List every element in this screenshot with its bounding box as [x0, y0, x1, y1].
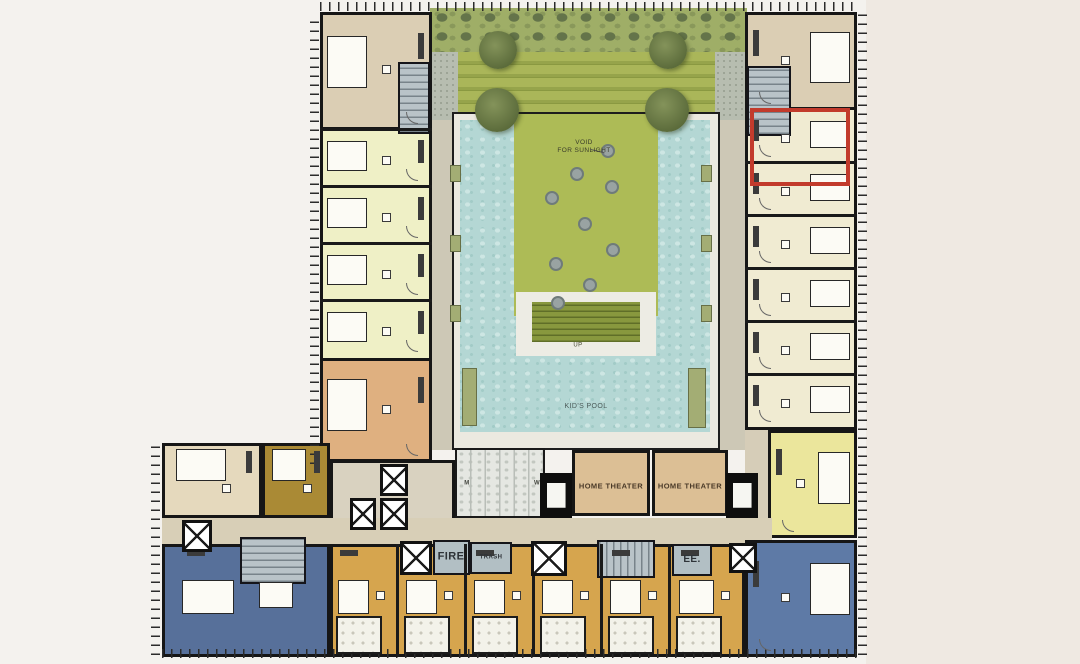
unit-22-tbl-2: [648, 591, 657, 600]
unit-12-tbl-2: [781, 399, 790, 408]
island-steps: [532, 302, 640, 342]
elevator-shaft-5: [531, 541, 567, 576]
interior-wall-12: [600, 544, 603, 657]
elevator-shaft-6: [729, 543, 757, 573]
label-trash: TRASH: [480, 554, 503, 561]
unit-10-clo-1: [753, 279, 759, 300]
label-home-theater-1: HOME THEATER: [579, 482, 643, 491]
unit-6-tbl-2: [781, 56, 790, 65]
unit-2-tbl-2: [382, 213, 391, 222]
unit-13-clo-1: [776, 449, 782, 475]
pool-column-5: [701, 305, 712, 322]
unit-15-tbl-2: [222, 484, 231, 493]
skylight-circle-3: [545, 191, 559, 205]
skylight-circle-4: [578, 217, 592, 231]
unit-11-clo-1: [753, 332, 759, 353]
unit-19-bed-0: [406, 580, 437, 614]
unit-3-tbl-2: [382, 270, 391, 279]
unit-23-tbl-2: [721, 591, 730, 600]
label-void-for-sunlight: VOID FOR SUNLIGHT: [557, 139, 610, 155]
stair-bottom-left: [240, 537, 306, 584]
unit-0-clo-1: [418, 33, 424, 59]
unit-16-bed-0: [272, 449, 306, 481]
pool-column-6: [688, 368, 706, 428]
terrace-paving-right: [715, 52, 747, 120]
theater-screen-2: [726, 473, 758, 518]
label-up: UP: [573, 342, 582, 349]
selected-unit-outline: [750, 108, 850, 186]
grid-ticks-2: [151, 443, 160, 655]
unit-16-tbl-2: [303, 484, 312, 493]
grid-ticks-4: [858, 14, 867, 655]
elevator-shaft-3: [182, 520, 212, 552]
bathroom-pod-5: [676, 616, 722, 654]
interior-wall-7: [745, 320, 857, 323]
unit-11-bed-0: [810, 333, 850, 361]
label-ee: EE.: [683, 554, 700, 566]
pool-column-3: [701, 165, 712, 182]
stair-bottom-center: [597, 540, 655, 578]
unit-22-bed-0: [610, 580, 641, 614]
terrace-paving-left: [432, 52, 458, 120]
unit-14-bed-0: [810, 563, 850, 615]
unit-8-tbl-2: [781, 187, 790, 196]
unit-10-tbl-2: [781, 293, 790, 302]
unit-20-bed-0: [474, 580, 505, 614]
interior-wall-5: [745, 214, 857, 217]
unit-6-bed-0: [810, 32, 850, 83]
unit-13-tbl-2: [796, 479, 805, 488]
skylight-circle-8: [551, 296, 565, 310]
unit-15-bed-0: [176, 449, 226, 481]
interior-wall-13: [668, 544, 671, 657]
skylight-circle-6: [549, 257, 563, 271]
interior-wall-6: [745, 267, 857, 270]
unit-12-bed-0: [810, 386, 850, 414]
pool-column-2: [450, 305, 461, 322]
elevator-shaft-0: [350, 498, 376, 530]
unit-18-tbl-2: [376, 591, 385, 600]
tree-3: [645, 88, 689, 132]
unit-3-bed-0: [327, 255, 367, 285]
unit-18-bed-0: [338, 580, 369, 614]
unit-6-clo-1: [753, 30, 759, 56]
unit-18-clo-1: [340, 550, 358, 556]
unit-5-bed-0: [327, 379, 367, 431]
label-home-theater-2: HOME THEATER: [658, 482, 722, 491]
unit-9-bed-0: [810, 227, 850, 255]
unit-10-bed-0: [810, 280, 850, 308]
pool-column-1: [450, 235, 461, 252]
tree-0: [479, 31, 517, 69]
skylight-circle-2: [605, 180, 619, 194]
interior-wall-8: [745, 373, 857, 376]
bathroom-pod-4: [608, 616, 654, 654]
unit-9-tbl-2: [781, 240, 790, 249]
unit-14-tbl-2: [781, 593, 790, 602]
grid-ticks-0: [320, 2, 857, 11]
background-right-margin: [866, 0, 1080, 664]
tree-1: [649, 31, 687, 69]
pool-column-0: [450, 165, 461, 182]
unit-4-clo-1: [418, 311, 424, 334]
terrace-hedge: [430, 8, 747, 52]
unit-20-tbl-2: [512, 591, 521, 600]
pool-column-7: [462, 368, 477, 426]
bathroom-pod-3: [540, 616, 586, 654]
unit-12-clo-1: [753, 385, 759, 406]
bathroom-pod-2: [472, 616, 518, 654]
interior-wall-9: [396, 544, 399, 657]
tree-2: [475, 88, 519, 132]
unit-4-tbl-2: [382, 327, 391, 336]
interior-wall-10: [464, 544, 467, 657]
grid-ticks-1: [310, 14, 319, 464]
interior-wall-1: [320, 185, 432, 188]
unit-2-clo-1: [418, 197, 424, 220]
skylight-circle-5: [606, 243, 620, 257]
unit-5-tbl-2: [382, 405, 391, 414]
unit-11-tbl-2: [781, 346, 790, 355]
label-womens-restroom: W: [534, 480, 540, 487]
unit-15-clo-1: [246, 451, 252, 473]
unit-17-bed-3: [259, 582, 293, 608]
unit-3-clo-1: [418, 254, 424, 277]
skylight-circle-7: [583, 278, 597, 292]
bathroom-pod-1: [404, 616, 450, 654]
bathroom-pod-0: [336, 616, 382, 654]
unit-22-clo-1: [612, 550, 630, 556]
pool-column-4: [701, 235, 712, 252]
label-mens-restroom: M: [464, 480, 469, 487]
unit-1-bed-0: [327, 141, 367, 171]
unit-4-bed-0: [327, 312, 367, 342]
interior-wall-0: [320, 128, 432, 131]
unit-19-tbl-2: [444, 591, 453, 600]
unit-21-tbl-2: [580, 591, 589, 600]
label-kids-pool: KID'S POOL: [564, 403, 607, 411]
unit-5-clo-1: [418, 377, 424, 403]
unit-0-bed-0: [327, 36, 367, 88]
unit-2-bed-0: [327, 198, 367, 228]
elevator-shaft-2: [380, 498, 408, 530]
unit-21-bed-0: [542, 580, 573, 614]
skylight-circle-1: [570, 167, 584, 181]
unit-0-tbl-2: [382, 65, 391, 74]
unit-17-bed-0: [182, 580, 234, 614]
unit-1-tbl-2: [382, 156, 391, 165]
unit-16-clo-1: [314, 451, 320, 473]
unit-23-bed-0: [679, 580, 714, 614]
elevator-shaft-1: [380, 464, 408, 496]
interior-wall-3: [320, 299, 432, 302]
unit-13-bed-0: [818, 452, 850, 504]
theater-screen-1: [540, 473, 572, 518]
elevator-shaft-4: [400, 541, 432, 575]
unit-1-clo-1: [418, 140, 424, 163]
label-fire: FIRE: [438, 550, 465, 563]
floor-plan-canvas: VOID FOR SUNLIGHTUPKID'S POOLHOME THEATE…: [0, 0, 1080, 664]
unit-9-clo-1: [753, 226, 759, 247]
interior-wall-2: [320, 242, 432, 245]
